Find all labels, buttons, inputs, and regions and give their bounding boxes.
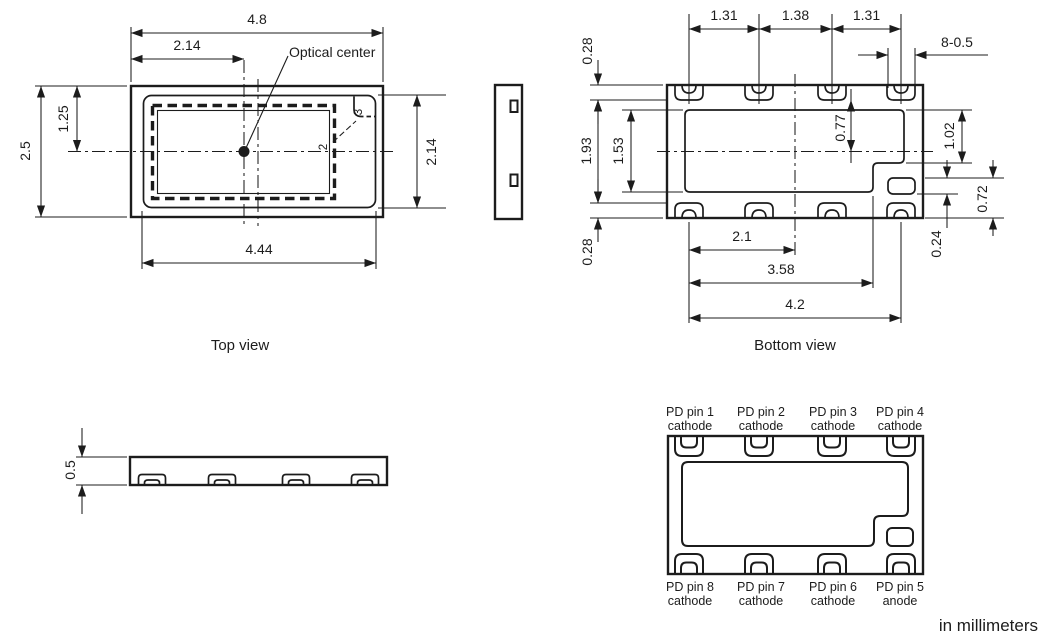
- pin-label-name: PD pin 3: [809, 405, 857, 419]
- profile-pad: [352, 475, 379, 486]
- top-view-label: Top view: [211, 337, 270, 354]
- bottom-view: 1.31 1.38 1.31 8-0.5 0.28 1.93 1.53 0.28: [578, 7, 1004, 354]
- dim-overall-height: 2.5: [17, 141, 33, 161]
- dim-edge-to-pads-bottom: 0.28: [579, 238, 595, 265]
- pin-label-terminal: cathode: [668, 594, 713, 608]
- castellation-pad: [675, 436, 703, 456]
- dim-pad1-to-step: 3.58: [767, 261, 794, 277]
- dim-overall-width: 4.8: [247, 11, 267, 27]
- dim-pad-pitch-left: 1.31: [710, 7, 737, 23]
- pin-diagram-outline: [668, 436, 923, 574]
- dim-pad-width: 8-0.5: [941, 34, 973, 50]
- dim-inner-height: 2.14: [423, 138, 439, 165]
- side-view-pad: [511, 175, 518, 187]
- castellation-pad: [887, 203, 915, 218]
- callout-3: 3: [353, 109, 365, 115]
- pin-label-terminal: cathode: [739, 419, 784, 433]
- profile-pad: [283, 475, 310, 486]
- pin-label-name: PD pin 2: [737, 405, 785, 419]
- dim-cavity-to-step: 1.02: [941, 122, 957, 149]
- dim-thickness: 0.5: [62, 460, 78, 480]
- pin-label-name: PD pin 5: [876, 580, 924, 594]
- optical-center-label: Optical center: [289, 44, 376, 60]
- anode-pad: [887, 528, 913, 546]
- top-view: Optical center 4.8 2.14 2.5 1.25 2.14 4.…: [17, 11, 446, 354]
- dim-pad-to-centerline: 0.77: [832, 114, 848, 141]
- castellation-pad: [818, 554, 846, 574]
- pin-label-terminal: cathode: [668, 419, 713, 433]
- callout-2: 2: [318, 144, 330, 150]
- pin-label-name: PD pin 4: [876, 405, 924, 419]
- dim-pad-pitch-right: 1.31: [853, 7, 880, 23]
- pin-label-terminal: anode: [883, 594, 918, 608]
- castellation-pad: [887, 554, 915, 574]
- pin-label-terminal: cathode: [739, 594, 784, 608]
- castellation-pad: [675, 554, 703, 574]
- castellation-pad: [818, 436, 846, 456]
- pin-diagram-cavity-outline: [682, 462, 908, 546]
- castellation-pad: [675, 203, 703, 218]
- units-note: in millimeters: [939, 616, 1038, 634]
- pin-label-name: PD pin 8: [666, 580, 714, 594]
- castellation-pad: [745, 554, 773, 574]
- castellation-pad: [887, 436, 915, 456]
- dim-edge-to-pads-top: 0.28: [579, 37, 595, 64]
- profile-pad: [209, 475, 236, 486]
- dim-inner-width: 4.44: [245, 241, 272, 257]
- drawing-svg: Optical center 4.8 2.14 2.5 1.25 2.14 4.…: [0, 0, 1043, 634]
- dim-cavity-height: 1.53: [610, 137, 626, 164]
- pin-diagram: PD pin 1 cathode PD pin 2 cathode PD pin…: [666, 405, 924, 608]
- dim-anode-pad-height: 0.24: [928, 230, 944, 257]
- dim-pad1-to-centerline: 2.1: [732, 228, 752, 244]
- pin-label-terminal: cathode: [878, 419, 923, 433]
- callout-leader: [333, 121, 356, 142]
- bottom-view-label: Bottom view: [754, 337, 836, 354]
- dim-pad-pitch-center: 1.38: [782, 7, 809, 23]
- package-drawing: Optical center 4.8 2.14 2.5 1.25 2.14 4.…: [0, 0, 1043, 634]
- anode-pad: [888, 178, 915, 194]
- dim-optical-center-x: 2.14: [173, 37, 200, 53]
- pin-label-name: PD pin 7: [737, 580, 785, 594]
- dim-pads-span: 4.2: [785, 296, 805, 312]
- profile-view: 0.5: [62, 428, 387, 514]
- dim-anode-pad-to-edge: 0.72: [974, 185, 990, 212]
- pin-label-name: PD pin 1: [666, 405, 714, 419]
- side-view-pad: [511, 101, 518, 113]
- optical-center-leader: [246, 56, 288, 148]
- pin-label-terminal: cathode: [811, 594, 856, 608]
- pin-label-name: PD pin 6: [809, 580, 857, 594]
- side-view: [495, 85, 522, 219]
- castellation-pad: [745, 436, 773, 456]
- profile-pad: [139, 475, 166, 486]
- optical-center-dot: [239, 146, 250, 157]
- dim-center-y: 1.25: [55, 105, 71, 132]
- castellation-pad: [745, 203, 773, 218]
- castellation-pad: [818, 203, 846, 218]
- profile-outline: [130, 457, 387, 485]
- pin-label-terminal: cathode: [811, 419, 856, 433]
- dim-pads-inner-span: 1.93: [578, 137, 594, 164]
